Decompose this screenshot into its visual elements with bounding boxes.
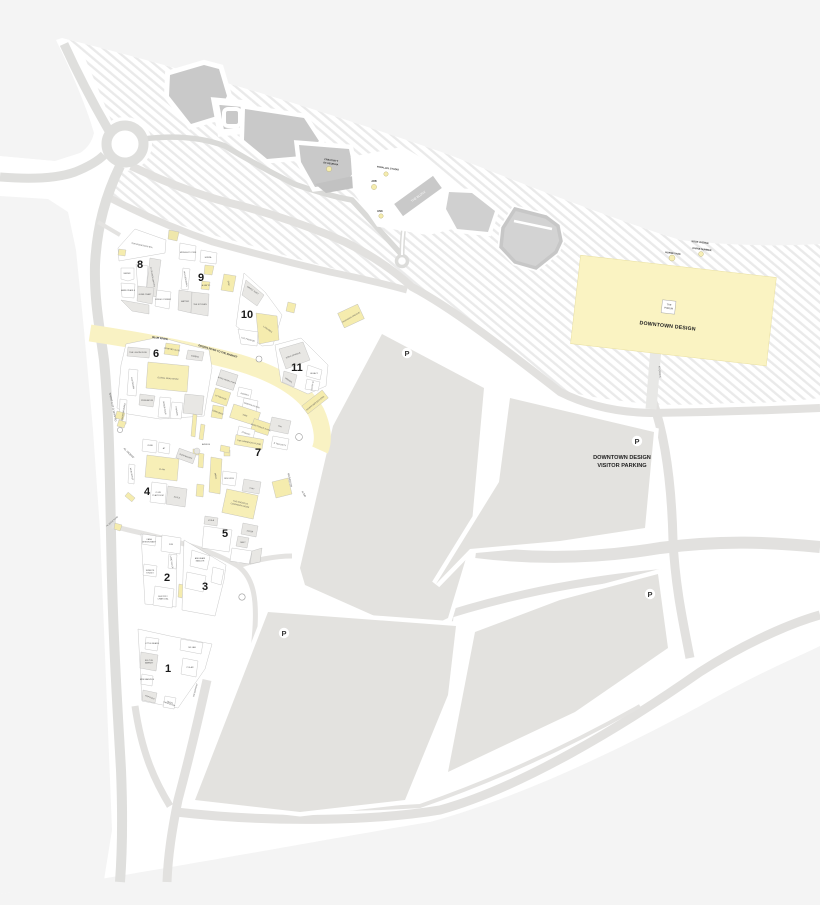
svg-text:THE LIGHTHOUSE: THE LIGHTHOUSE (129, 352, 147, 354)
svg-text:CASA: CASA (146, 538, 152, 541)
svg-text:VOILA: VOILA (208, 519, 215, 522)
svg-text:LITTLE BEANS: LITTLE BEANS (145, 642, 160, 645)
svg-text:WATER: WATER (124, 272, 132, 275)
svg-text:MIDNIGHT CORN: MIDNIGHT CORN (180, 252, 197, 254)
svg-text:5: 5 (222, 528, 228, 540)
svg-text:DESIGN MART: DESIGN MART (142, 541, 157, 544)
svg-text:HIRWA: HIRWA (205, 256, 212, 259)
svg-text:THE KITCHEN: THE KITCHEN (193, 304, 207, 306)
svg-text:11: 11 (291, 362, 303, 374)
svg-text:SEVI KIDS: SEVI KIDS (224, 478, 234, 480)
svg-text:PLAYROOM: PLAYROOM (152, 494, 164, 497)
svg-text:ANKUHARI: ANKUHARI (195, 557, 206, 560)
svg-text:3: 3 (202, 581, 208, 593)
svg-text:6: 6 (153, 348, 159, 360)
svg-text:P: P (404, 349, 409, 358)
svg-text:4: 4 (144, 486, 151, 498)
svg-text:STUDIO: STUDIO (146, 573, 154, 575)
svg-text:MINI MARVELS: MINI MARVELS (140, 678, 155, 681)
svg-text:7: 7 (255, 447, 261, 459)
svg-text:CHARCOAL: CHARCOAL (157, 598, 169, 601)
svg-text:2: 2 (164, 572, 170, 584)
svg-text:MS LAB: MS LAB (188, 646, 196, 649)
svg-text:P: P (281, 629, 286, 638)
svg-text:CUBE: CUBE (147, 445, 153, 447)
svg-text:10: 10 (241, 309, 253, 321)
svg-text:VISITOR PARKING: VISITOR PARKING (597, 463, 646, 469)
svg-text:MATTER: MATTER (181, 300, 190, 303)
svg-text:MARKET: MARKET (145, 662, 154, 665)
svg-text:PRISUATION: PRISUATION (141, 399, 154, 402)
svg-text:9: 9 (198, 272, 204, 284)
svg-text:8: 8 (137, 259, 143, 271)
svg-text:MARE PEARLS: MARE PEARLS (121, 289, 136, 292)
svg-text:ARB: ARB (371, 180, 376, 183)
svg-text:ZUN: ZUN (169, 544, 174, 546)
svg-text:GYAN CRAFT: GYAN CRAFT (139, 293, 153, 296)
svg-text:P: P (634, 437, 639, 446)
svg-text:POLAR: POLAR (187, 666, 194, 669)
svg-text:A GATTO: A GATTO (202, 284, 211, 287)
svg-text:MELT: MELT (240, 542, 246, 544)
svg-text:LEGACY: LEGACY (310, 372, 319, 375)
svg-text:DOWNTOWN DESIGN: DOWNTOWN DESIGN (593, 455, 651, 461)
svg-text:MAILLER: MAILLER (196, 560, 205, 563)
svg-text:HIVE: HIVE (377, 210, 383, 213)
svg-text:P: P (647, 590, 652, 599)
svg-text:CLUB: CLUB (155, 492, 161, 494)
svg-text:AVENUE: AVENUE (202, 443, 211, 446)
svg-text:1: 1 (165, 663, 171, 675)
svg-text:SIDDHI CORNER: SIDDHI CORNER (155, 299, 172, 301)
